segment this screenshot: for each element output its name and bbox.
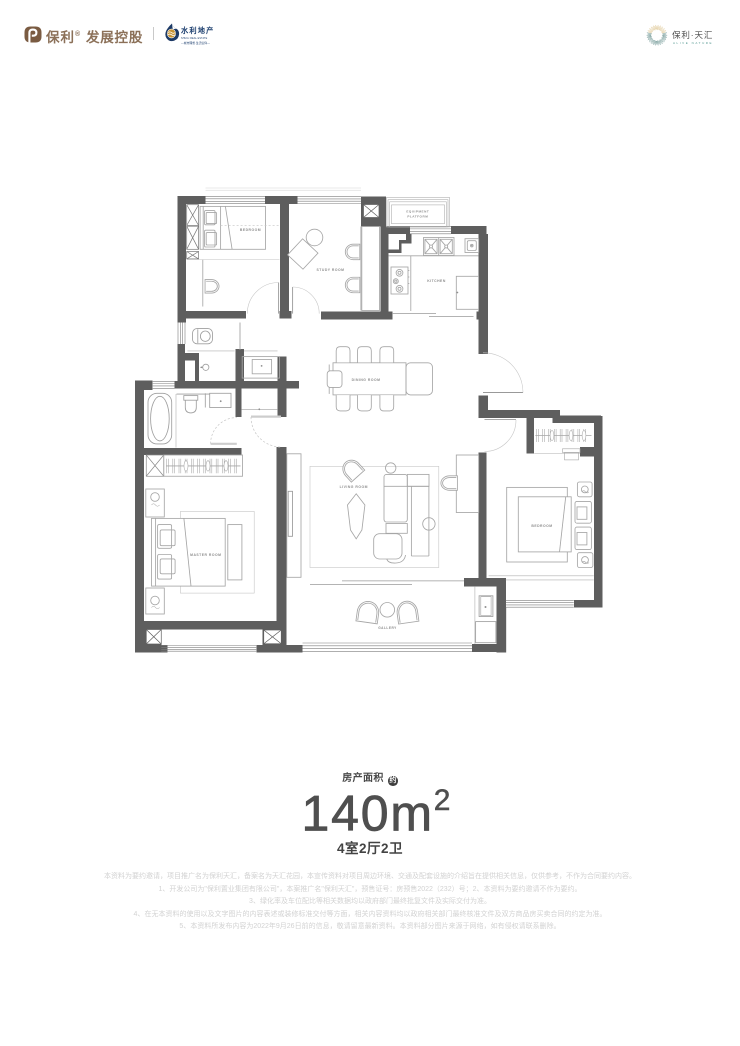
svg-text:BEDROOM: BEDROOM	[531, 524, 552, 528]
svg-text:MASTER ROOM: MASTER ROOM	[190, 553, 221, 557]
svg-text:DINING ROOM: DINING ROOM	[352, 378, 381, 382]
svg-text:PLATFORM: PLATFORM	[407, 215, 428, 219]
svg-text:BEDROOM: BEDROOM	[240, 228, 261, 232]
svg-text:EQUIPMENT: EQUIPMENT	[406, 209, 429, 213]
svg-text:KITCHEN: KITCHEN	[427, 279, 446, 283]
svg-text:LIVING ROOM: LIVING ROOM	[340, 485, 368, 489]
svg-text:STUDY ROOM: STUDY ROOM	[317, 268, 345, 272]
svg-text:GALLERY: GALLERY	[378, 626, 397, 630]
